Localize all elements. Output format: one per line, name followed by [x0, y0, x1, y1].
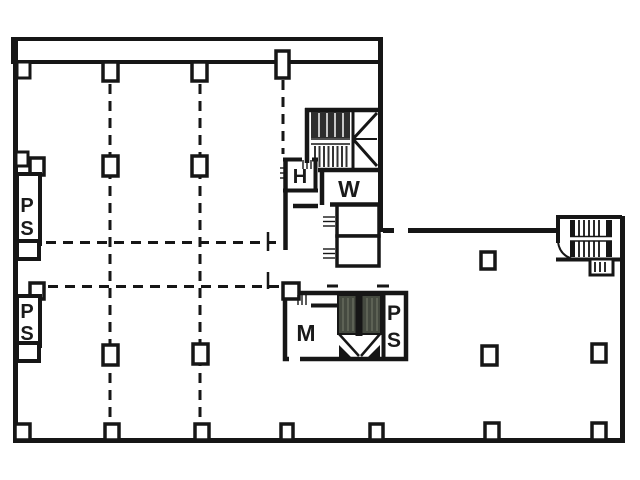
floor-plan-drawing: H W M: [0, 0, 640, 480]
column: [103, 345, 118, 365]
column: [281, 424, 293, 440]
floor-plan-page: H W M: [0, 0, 640, 480]
column: [195, 424, 209, 440]
outer-wall-top: [13, 39, 381, 62]
building-outline: [13, 39, 625, 441]
stair-winder-icon: [353, 112, 377, 168]
column: [370, 424, 383, 440]
column: [481, 252, 495, 269]
stair-landing: [311, 139, 350, 144]
pipe-shaft-lower-left: P S: [17, 283, 44, 361]
w-room: W: [322, 168, 379, 205]
pipe-shaft-upper-left: P S: [16, 152, 44, 259]
room-label-w: W: [338, 176, 360, 202]
column: [103, 156, 118, 176]
service-shafts: [323, 205, 379, 266]
shaft-box: [590, 259, 613, 275]
column: [105, 424, 119, 440]
room-label-ps1-p: P: [20, 195, 33, 217]
core-bottom-block: M P S: [283, 283, 406, 364]
room-label-ps1-s: S: [20, 218, 33, 240]
column: [17, 62, 30, 78]
column: [103, 62, 118, 81]
fire-stair-room: [556, 215, 622, 275]
room-label-ps-core-s: S: [387, 329, 401, 352]
column: [15, 424, 30, 440]
column: [16, 152, 28, 166]
column: [592, 423, 606, 440]
shaft-room-1: [337, 205, 379, 236]
column: [276, 51, 289, 78]
winder-line: [353, 113, 377, 139]
column: [482, 346, 497, 365]
column: [17, 343, 39, 361]
column: [17, 241, 39, 259]
column: [193, 344, 208, 364]
room-label-ps2-p: P: [20, 301, 33, 323]
room-label-m: M: [296, 320, 315, 346]
column: [192, 62, 207, 81]
stair-flight-upper: [311, 112, 350, 138]
winder-line: [353, 139, 377, 166]
column: [485, 423, 499, 440]
door-opening: [289, 354, 300, 364]
column: [192, 156, 207, 176]
column: [592, 344, 606, 362]
room-label-h: H: [293, 166, 307, 188]
stair-divider: [356, 291, 363, 336]
shaft-room-2: [337, 236, 379, 266]
column: [283, 283, 299, 299]
room-label-ps2-s: S: [20, 323, 33, 345]
stair-treads-icon: [570, 220, 612, 257]
room-label-ps-core-p: P: [387, 302, 401, 325]
